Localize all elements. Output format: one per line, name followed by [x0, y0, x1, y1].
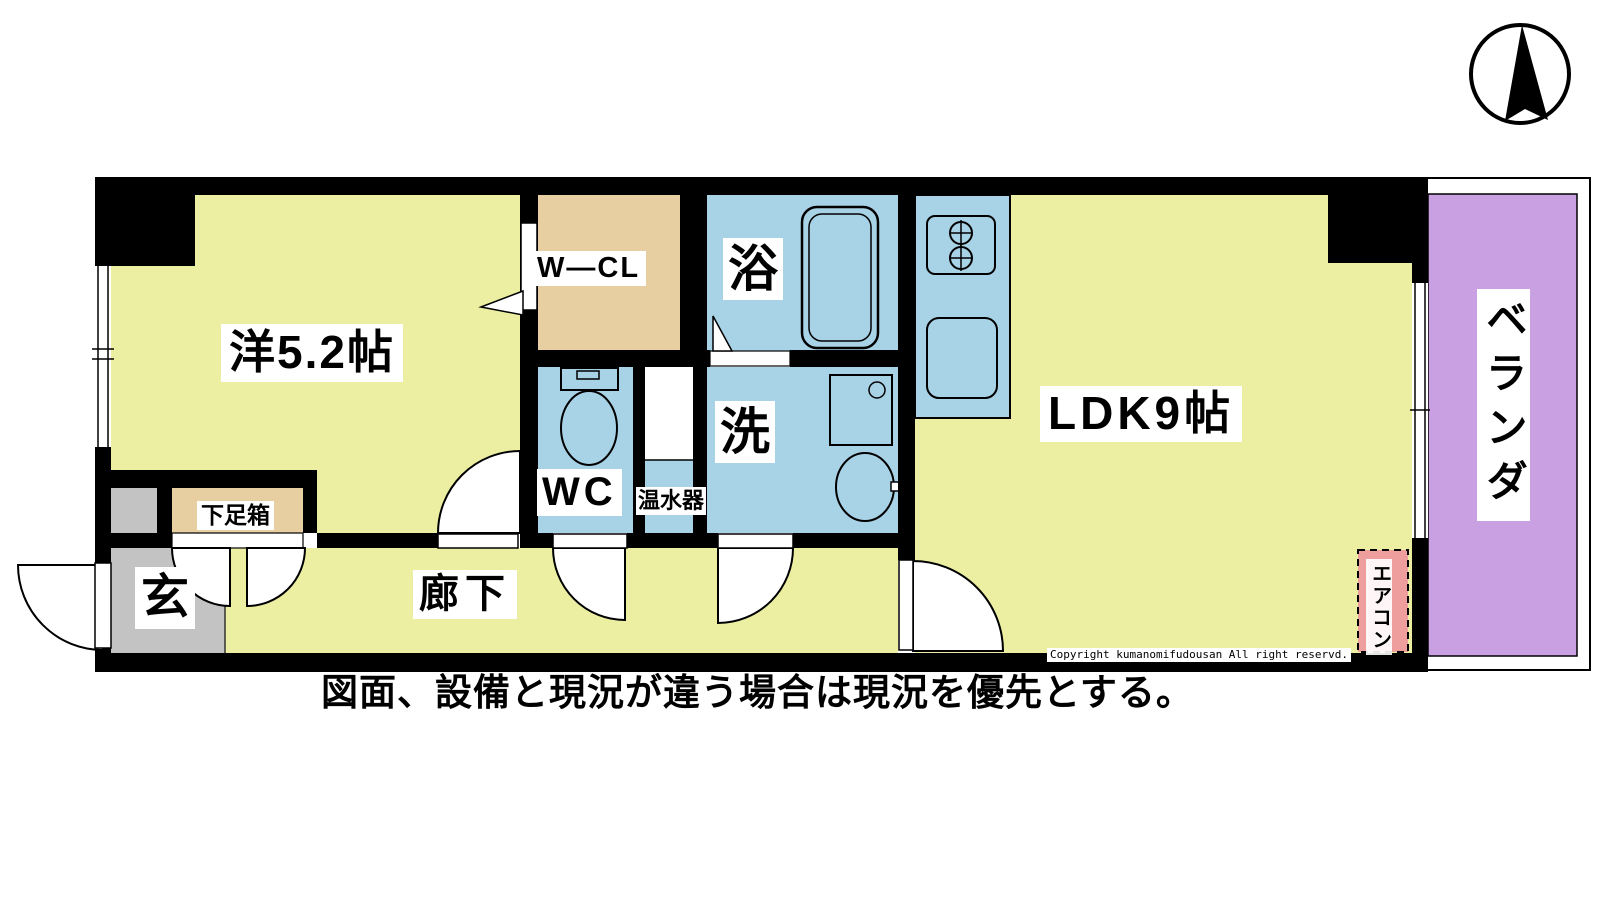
room-label-western: 洋5.2帖	[221, 324, 403, 382]
water-heater-upper	[645, 367, 693, 460]
column-top-left	[95, 177, 195, 266]
bath-door-gap	[710, 351, 790, 366]
wall-alcove-east	[157, 487, 172, 533]
entrance-door-leaf	[95, 563, 111, 648]
floorplan-drawing	[0, 0, 1600, 900]
western-door-leaf	[438, 534, 518, 548]
room-label-corridor: 廊下	[413, 570, 517, 619]
copyright-text: Copyright kumanomifudousan All right res…	[1047, 648, 1351, 662]
room-label-entrance: 玄	[135, 567, 195, 629]
room-label-wc: WC	[537, 469, 622, 516]
wall-right	[1412, 538, 1428, 653]
wall-ldk-west	[898, 195, 915, 560]
room-label-walk-in-closet: W―CL	[531, 251, 646, 286]
window-west-icon	[92, 266, 114, 447]
wall-western-south	[95, 470, 317, 488]
entrance-door-arc	[18, 565, 103, 650]
column-top-right	[1328, 177, 1428, 263]
entrance-alcove	[111, 487, 157, 533]
shoe-box-step	[172, 533, 303, 548]
washroom-door-leaf	[718, 534, 793, 548]
wall-corridor-north	[627, 533, 718, 548]
floorplan-page: 洋5.2帖 W―CL 浴 洗 WC 温水器 LDK9帖 廊下 玄 下足箱 ベラン…	[0, 0, 1600, 900]
ldk-door-leaf	[899, 560, 913, 650]
wc-door-leaf	[553, 534, 627, 548]
room-label-bath: 浴	[723, 238, 783, 300]
wall-wcl-bath	[680, 195, 707, 367]
wall-bath-south	[790, 350, 900, 367]
room-label-water-heater: 温水器	[636, 487, 706, 515]
room-label-veranda: ベランダ	[1477, 289, 1530, 521]
disclaimer-text: 図面、設備と現況が違う場合は現況を優先とする。	[321, 673, 1194, 713]
window-balcony-icon	[1410, 283, 1430, 538]
north-compass-icon	[1471, 25, 1569, 123]
room-label-shoe-box: 下足箱	[197, 501, 274, 530]
wall-corridor-north	[793, 533, 913, 548]
wall-top	[95, 177, 1428, 195]
wall-left	[95, 648, 111, 672]
room-label-ldk: LDK9帖	[1040, 386, 1242, 442]
wall-shoebox-east	[303, 470, 317, 533]
wall-alcove-south	[95, 533, 172, 548]
wall-corridor-north	[520, 533, 553, 548]
room-label-aircon: エアコン	[1366, 559, 1392, 655]
wall-wcl-south	[538, 350, 710, 367]
room-label-washroom: 洗	[715, 401, 775, 463]
wall-western-south-b	[317, 533, 438, 548]
wall-right	[1412, 263, 1428, 283]
